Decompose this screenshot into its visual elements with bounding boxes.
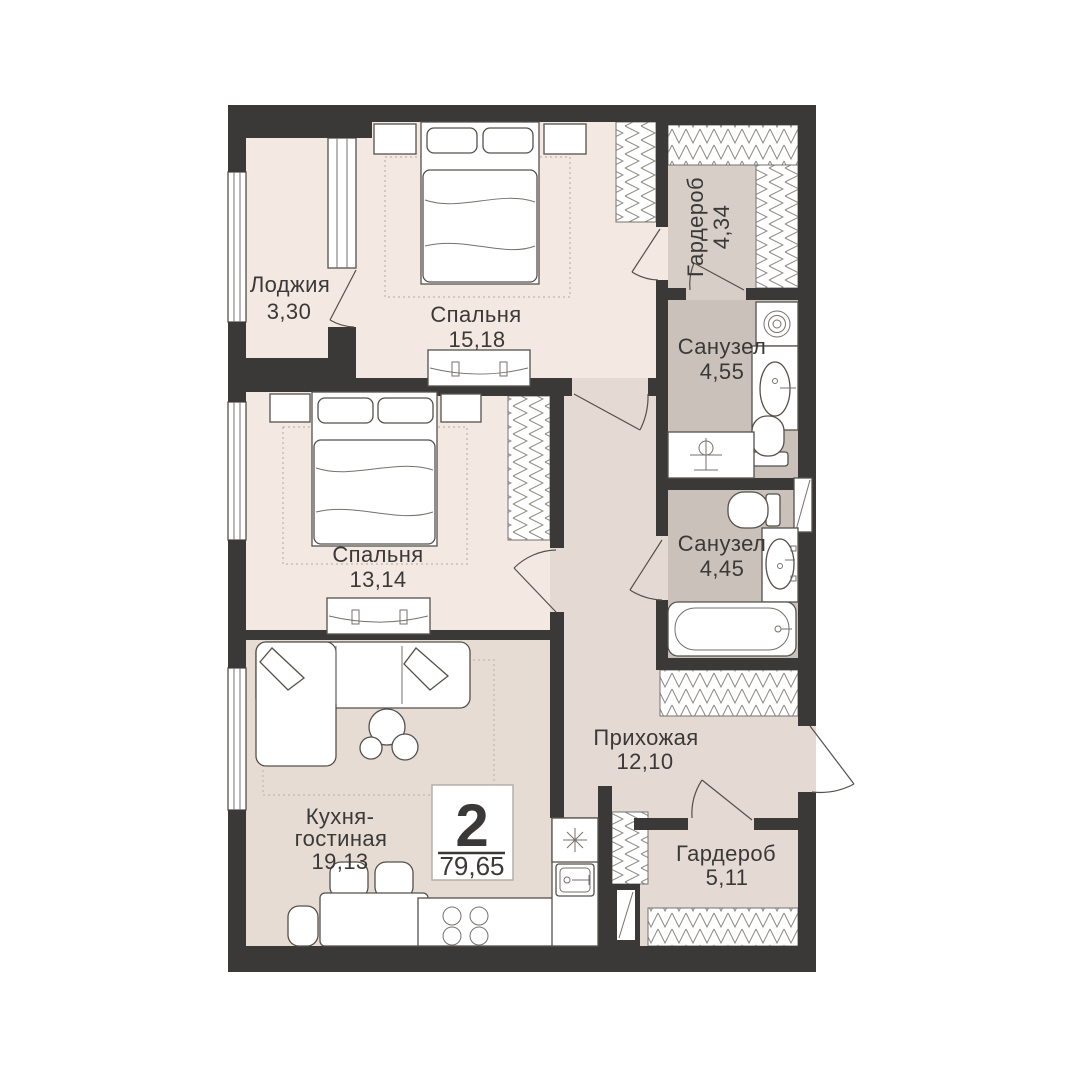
room-name: Лоджия: [250, 272, 330, 297]
room-area: 3,30: [267, 299, 311, 324]
room-name: Санузел: [678, 334, 767, 359]
loggia-glazed-partition: [328, 138, 356, 268]
chair: [288, 906, 318, 946]
wardrobe1-shelf-top: [668, 125, 798, 165]
room-name: Спальня: [430, 302, 521, 327]
wardrobe1-shelf-right: [756, 165, 798, 288]
room-name: Спальня: [332, 542, 423, 567]
dresser: [428, 350, 530, 386]
kitchen-sink: [556, 864, 594, 896]
entrance-door: [810, 726, 854, 792]
nightstand: [270, 394, 310, 422]
bedroom1-closet: [616, 122, 656, 222]
dresser: [327, 598, 430, 634]
bathroom2-vent-shaft: [794, 478, 812, 532]
doorway-patch: [686, 288, 746, 300]
dining-table: [320, 893, 428, 946]
shower: [668, 432, 754, 478]
room-area: 4,55: [700, 359, 744, 384]
doorway-patch: [550, 548, 564, 612]
floor-plan: Лоджия 3,30 Спальня 15,18 Гардероб 4,34 …: [0, 0, 1080, 1080]
room-area: 19,13: [311, 849, 368, 874]
room-area: 4,45: [700, 556, 744, 581]
apartment-badge: 2 79,65: [432, 785, 513, 881]
room-name-line2: гостиная: [295, 826, 388, 851]
doorway-patch: [688, 818, 754, 830]
room-area: 13,14: [349, 567, 406, 592]
rooms-count: 2: [455, 792, 488, 859]
wardrobe2-shelf-bottom: [648, 908, 798, 946]
floor-plan-page: Лоджия 3,30 Спальня 15,18 Гардероб 4,34 …: [0, 0, 1080, 1080]
hallway-corridor-floor: [564, 378, 656, 662]
room-name: Гардероб: [676, 841, 776, 866]
room-name: Прихожая: [593, 725, 698, 750]
total-area: 79,65: [439, 851, 504, 881]
loggia-floor: [246, 138, 328, 360]
nightstand: [441, 394, 481, 422]
bedroom2-closet: [508, 396, 550, 540]
room-area: 5,11: [706, 865, 749, 890]
room-name: Санузел: [678, 531, 767, 556]
hallway-closet-niche: [660, 670, 798, 716]
kitchen-vent-shaft: [617, 890, 635, 940]
double-bed: [421, 122, 539, 284]
fridge-symbol: [552, 818, 598, 862]
nightstand: [544, 124, 586, 154]
room-area: 12,10: [616, 749, 673, 774]
bedroom2-window: [228, 402, 246, 540]
kitchen-window: [228, 668, 246, 810]
room-area: 15,18: [448, 327, 505, 352]
double-bed: [312, 392, 437, 546]
room-name: Гардероб: [683, 177, 708, 277]
room-area: 4,34: [709, 205, 734, 249]
washbasin: [762, 528, 798, 602]
nightstand: [374, 124, 416, 154]
toilet: [728, 492, 780, 528]
doorway-patch: [656, 227, 668, 280]
bathtub: [668, 602, 796, 656]
doorway-patch: [798, 726, 816, 792]
loggia-window: [228, 172, 246, 322]
